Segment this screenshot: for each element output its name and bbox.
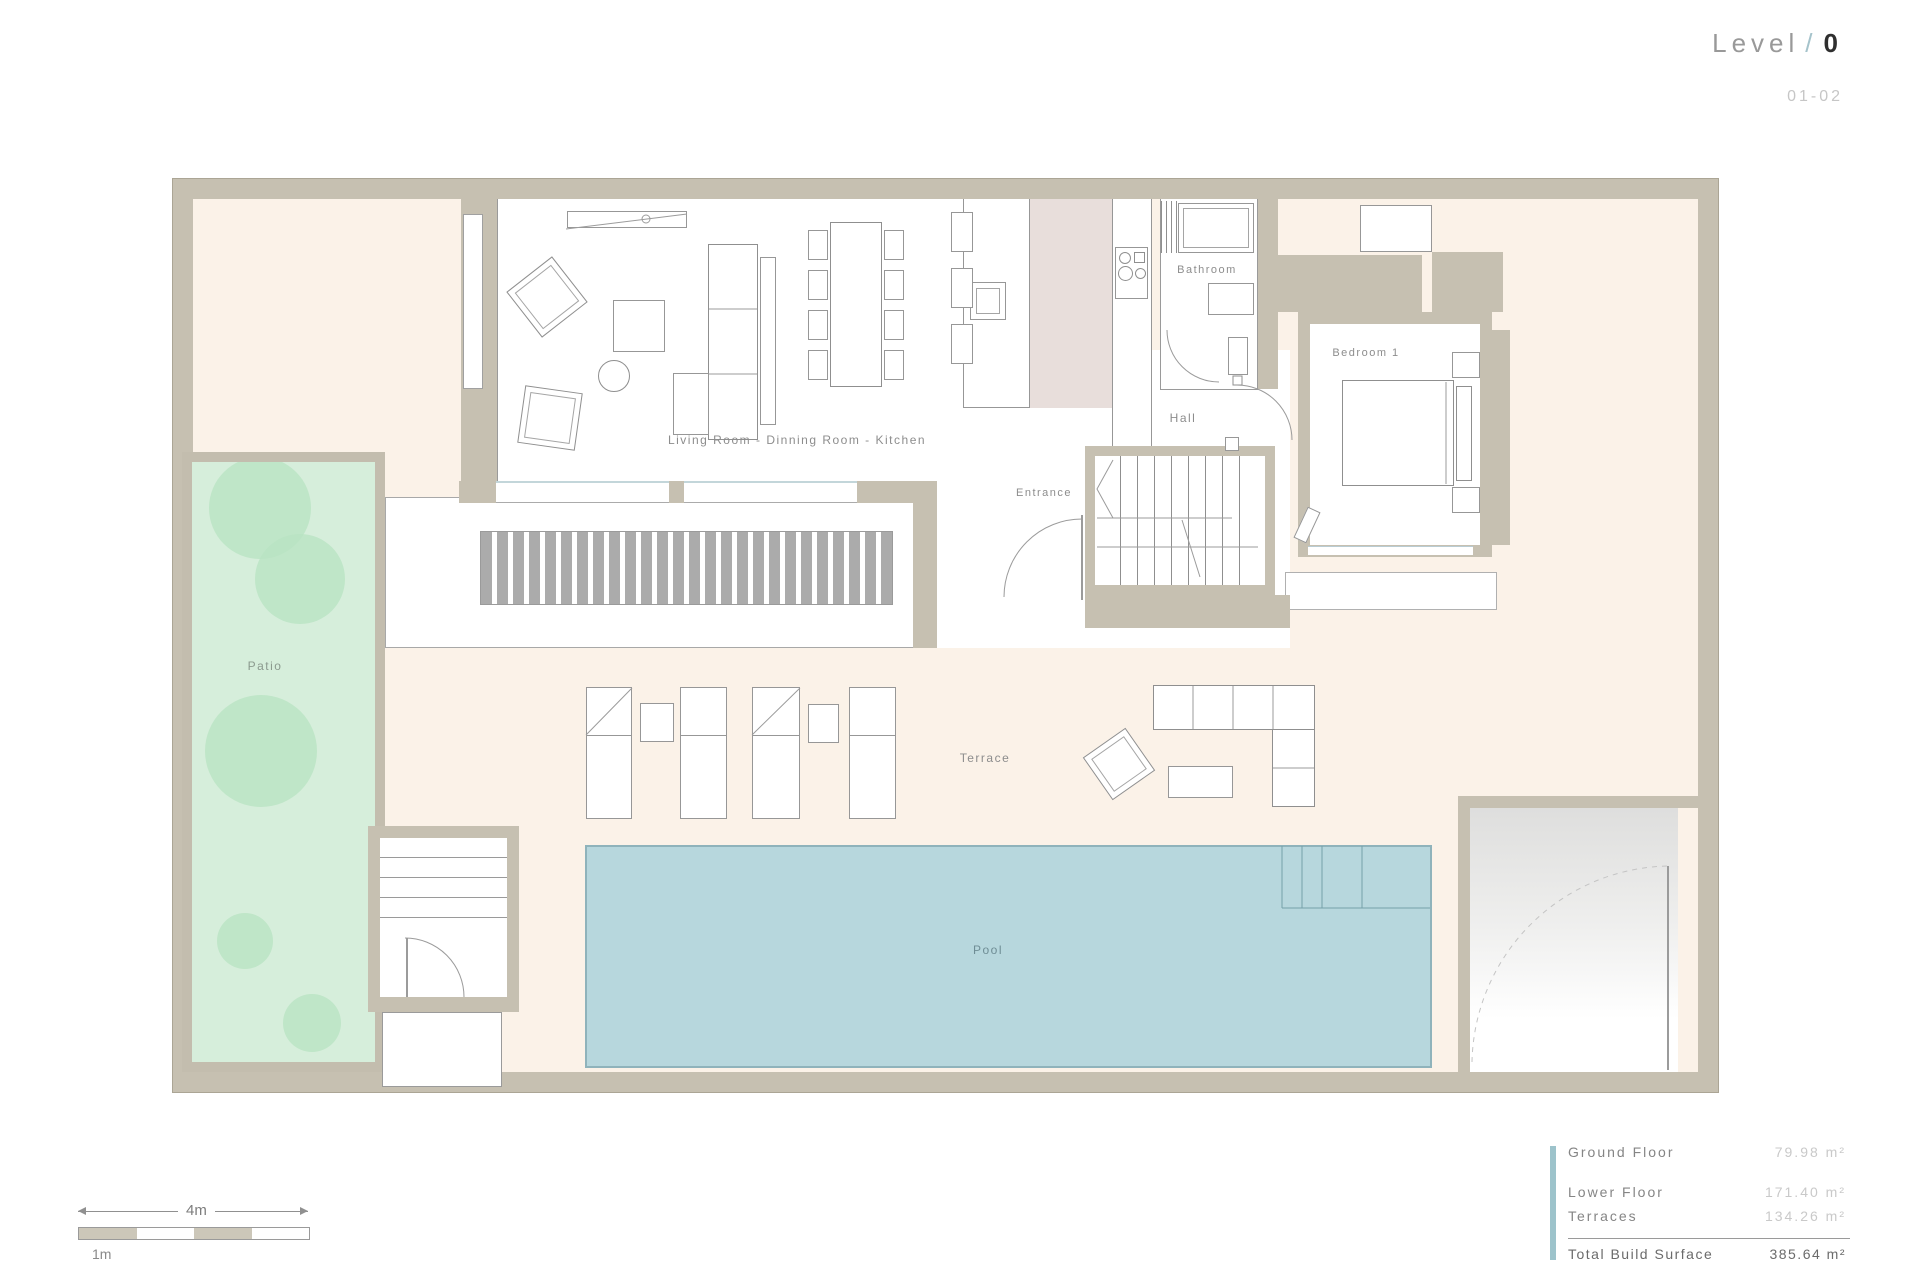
toilet (1228, 337, 1248, 375)
side-table (808, 704, 839, 743)
nightstand (1452, 487, 1480, 513)
sheet-number: 01-02 (1787, 88, 1843, 106)
summary-row-label: Terraces (1568, 1208, 1638, 1224)
interior-wall (1492, 330, 1510, 545)
cooktop (1115, 247, 1148, 299)
room-label-pool: Pool (928, 943, 1048, 957)
headboard (1456, 386, 1472, 481)
stair-treads (1120, 456, 1252, 585)
summary-row-value: 171.40 m² (1765, 1184, 1846, 1200)
burner-icon (1135, 268, 1146, 279)
tree-icon (217, 913, 273, 969)
kitchen-sink (970, 282, 1006, 320)
dining-table (830, 222, 882, 387)
stair-landing-post (1225, 437, 1239, 451)
side-stairs-wall (507, 826, 519, 1012)
storage-closet (1360, 205, 1432, 252)
scale-arrow-left-icon (78, 1207, 86, 1215)
summary-total-row: Total Build Surface 385.64 m² (1568, 1246, 1850, 1262)
sun-lounger (680, 687, 727, 819)
west-window (463, 214, 483, 389)
summary-row: Ground Floor 79.98 m² (1568, 1144, 1850, 1160)
burner-icon (1119, 252, 1131, 264)
wall-cabinet (951, 324, 973, 364)
side-table (613, 300, 665, 352)
summary-value-unit: m² (1827, 1246, 1846, 1262)
dining-chair (808, 270, 828, 300)
level-separator: / (1799, 28, 1823, 58)
summary-value-unit: m² (1826, 1208, 1846, 1224)
page-title: Level/0 (1712, 28, 1843, 59)
room-label-living: Living Room - Dinning Room - Kitchen (637, 433, 957, 447)
tree-icon (255, 534, 345, 624)
kitchen-floor (1030, 199, 1112, 408)
stairs-south-wall (1085, 595, 1290, 628)
outdoor-sofa (1153, 685, 1315, 730)
shower-screen (1161, 201, 1177, 253)
summary-value-unit: m² (1826, 1144, 1846, 1160)
dining-chair (884, 350, 904, 380)
tree-icon (283, 994, 341, 1052)
bedroom-window (1308, 546, 1473, 555)
room-label-terrace: Terrace (925, 751, 1045, 765)
summary-total-value: 385.64 m² (1769, 1246, 1846, 1262)
shower-drain (1183, 208, 1249, 248)
summary-row-value: 79.98 m² (1775, 1144, 1846, 1160)
sun-lounger (849, 687, 896, 819)
south-window (684, 481, 857, 503)
summary-divider (1568, 1238, 1850, 1239)
side-stairs-wall (368, 826, 380, 1012)
garage-wall (1458, 796, 1470, 1072)
side-stairs-wall (368, 997, 518, 1012)
dining-chair (808, 310, 828, 340)
scale-bar (78, 1227, 310, 1240)
level-label: Level (1712, 28, 1799, 58)
tree-icon (205, 695, 317, 807)
coffee-table (1168, 766, 1233, 798)
chaise (673, 373, 709, 435)
outdoor-sofa (1272, 729, 1315, 807)
summary-total-label: Total Build Surface (1568, 1246, 1713, 1262)
armchair-seat (524, 392, 576, 444)
bathroom-sink (1208, 283, 1254, 315)
scale-segment (194, 1228, 252, 1239)
floor-plan-sheet: Level/0 01-02 (0, 0, 1920, 1280)
entrance-west-wall (913, 481, 937, 648)
entry-porch (382, 1012, 502, 1087)
room-label-entrance: Entrance (984, 487, 1104, 499)
garage-wall (1458, 796, 1698, 808)
bedroom-step (1285, 572, 1497, 610)
dining-chair (808, 350, 828, 380)
scale-segment (137, 1228, 195, 1239)
dining-chair (808, 230, 828, 260)
sofa-back (760, 257, 776, 425)
summary-value-number: 385.64 (1769, 1246, 1821, 1262)
scale-segment-label: 1m (92, 1246, 111, 1262)
wall-cabinet (951, 212, 973, 252)
summary-row-label: Lower Floor (1568, 1184, 1664, 1200)
dining-chair (884, 230, 904, 260)
summary-row: Terraces 134.26 m² (1568, 1208, 1850, 1224)
sink-basin (976, 288, 1000, 314)
scale-total-label: 4m (178, 1202, 215, 1219)
shower-tray (1178, 203, 1254, 253)
wall-cabinet (951, 268, 973, 308)
scale-segment (252, 1228, 310, 1239)
summary-accent-bar (1550, 1146, 1556, 1260)
summary-value-number: 134.26 (1765, 1208, 1820, 1224)
oven-icon (1134, 252, 1145, 263)
armchair (517, 385, 583, 451)
patio-area (182, 452, 385, 1072)
scale-arrow-right-icon (300, 1207, 308, 1215)
room-label-bedroom: Bedroom 1 (1306, 347, 1426, 359)
sofa (708, 244, 758, 440)
dining-chair (884, 310, 904, 340)
level-number: 0 (1824, 28, 1843, 58)
tv-shelf (567, 211, 687, 228)
summary-value-number: 79.98 (1775, 1144, 1820, 1160)
area-summary-table: Ground Floor 79.98 m² Lower Floor 171.40… (1550, 1144, 1850, 1276)
interior-wall (1258, 199, 1278, 389)
sun-lounger (752, 687, 800, 819)
burner-icon (1118, 266, 1133, 281)
bed (1342, 380, 1454, 486)
nightstand (1452, 352, 1480, 378)
side-stair-treads (380, 838, 507, 920)
sun-lounger (586, 687, 632, 819)
south-window (496, 481, 669, 503)
room-label-hall: Hall (1133, 411, 1233, 425)
driveway-ramp (1470, 808, 1678, 1072)
round-table (598, 360, 630, 392)
summary-value-number: 171.40 (1765, 1184, 1820, 1200)
room-label-bathroom: Bathroom (1147, 264, 1267, 276)
side-stairs-wall (368, 826, 518, 838)
summary-value-unit: m² (1826, 1184, 1846, 1200)
summary-row-label: Ground Floor (1568, 1144, 1674, 1160)
interior-wall (1277, 255, 1422, 312)
dining-chair (884, 270, 904, 300)
room-label-patio: Patio (205, 659, 325, 673)
interior-wall (1432, 252, 1503, 312)
summary-row-value: 134.26 m² (1765, 1208, 1846, 1224)
summary-row: Lower Floor 171.40 m² (1568, 1184, 1850, 1200)
side-table (640, 703, 674, 742)
slatted-deck (480, 531, 893, 605)
scale-segment (79, 1228, 137, 1239)
